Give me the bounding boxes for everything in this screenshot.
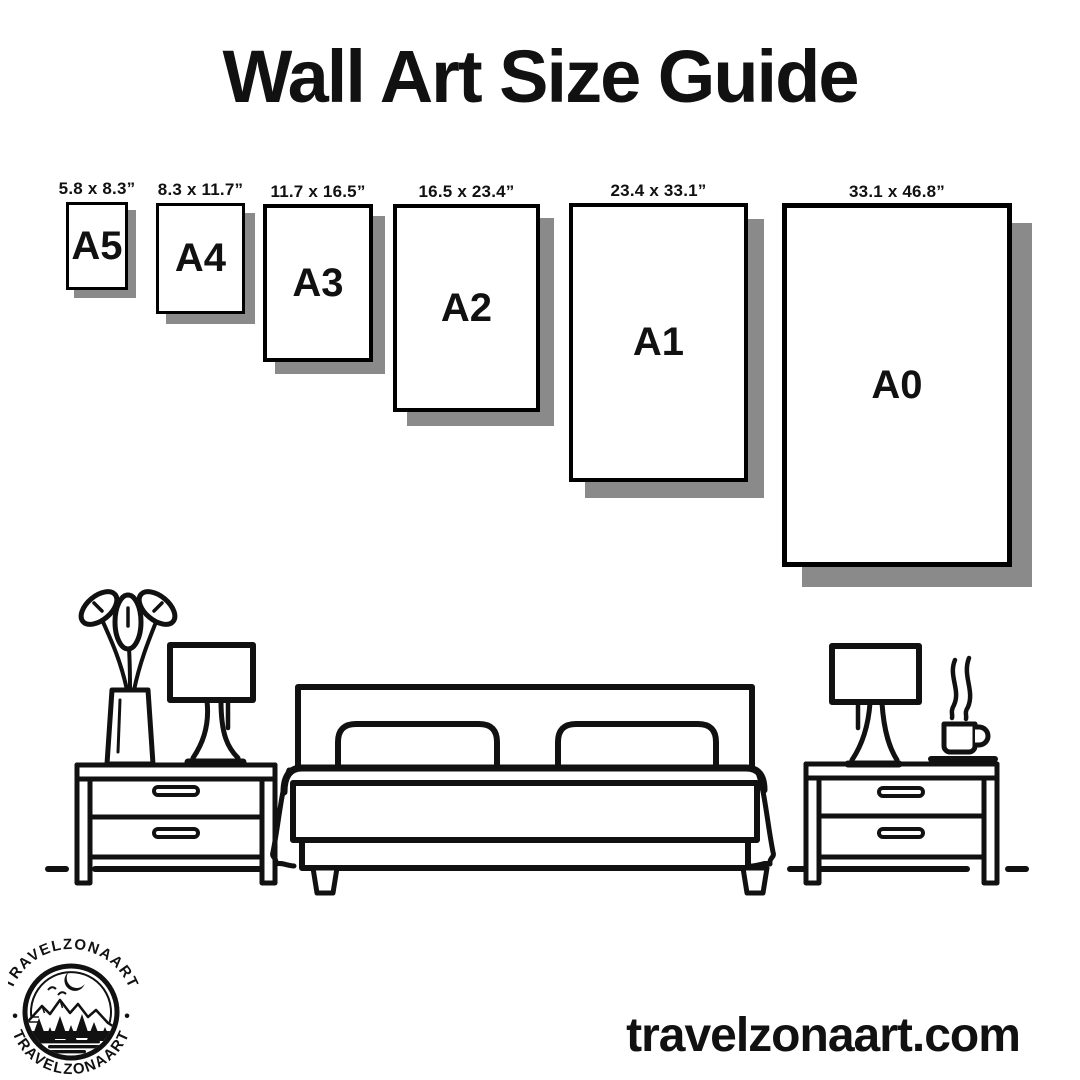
pillow-left: [338, 724, 497, 768]
paper-a0: 33.1 x 46.8” A0: [782, 203, 1012, 567]
bed-foot-right: [743, 868, 767, 893]
paper-a5-label: A5: [71, 224, 122, 269]
paper-a5-dimensions: 5.8 x 8.3”: [59, 179, 136, 199]
wall-art-size-guide-poster: Wall Art Size Guide 5.8 x 8.3” A5 8.3 x …: [0, 0, 1080, 1080]
paper-a1: 23.4 x 33.1” A1: [569, 203, 748, 482]
coffee-cup-icon: [931, 658, 995, 759]
paper-a3-label: A3: [292, 261, 343, 306]
brand-logo-badge: TRAVELZONAART TRAVELZONAART • •: [8, 928, 140, 1078]
paper-a4-label: A4: [175, 236, 226, 281]
website-url: travelzonaart.com: [600, 1008, 1046, 1063]
logo-separator-left: •: [12, 1008, 18, 1025]
paper-a3: 11.7 x 16.5” A3: [263, 204, 373, 362]
lamp-left-icon: [170, 645, 253, 762]
paper-a1-dimensions: 23.4 x 33.1”: [611, 181, 707, 201]
plant-icon: [75, 585, 181, 764]
lamp-right-icon: [832, 646, 919, 764]
paper-a4: 8.3 x 11.7” A4: [156, 203, 245, 314]
paper-a2-label: A2: [441, 286, 492, 331]
nightstand-left-icon: [77, 765, 275, 883]
paper-a2: 16.5 x 23.4” A2: [393, 204, 540, 412]
paper-a0-dimensions: 33.1 x 46.8”: [849, 182, 945, 202]
page-title: Wall Art Size Guide: [0, 34, 1080, 119]
paper-a2-dimensions: 16.5 x 23.4”: [419, 182, 515, 202]
bed-icon: [273, 687, 774, 893]
bedroom-scene-illustration: [40, 585, 1040, 900]
paper-a5: 5.8 x 8.3” A5: [66, 202, 128, 290]
paper-a4-dimensions: 8.3 x 11.7”: [158, 180, 243, 200]
paper-a1-label: A1: [633, 320, 684, 365]
pillow-right: [558, 724, 716, 768]
nightstand-right-icon: [806, 764, 997, 883]
paper-a0-label: A0: [871, 363, 922, 408]
logo-separator-right: •: [124, 1008, 130, 1025]
treeline-band: [25, 1031, 117, 1038]
paper-a3-dimensions: 11.7 x 16.5”: [270, 182, 365, 202]
bed-foot-left: [313, 868, 337, 893]
